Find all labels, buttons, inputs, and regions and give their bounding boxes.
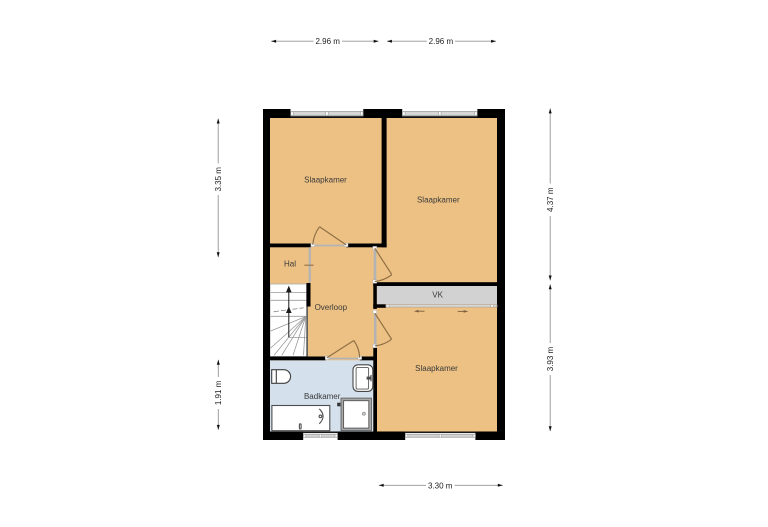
svg-text:Slaapkamer: Slaapkamer xyxy=(417,195,460,204)
svg-text:1.91 m: 1.91 m xyxy=(214,380,223,405)
svg-text:3.30 m: 3.30 m xyxy=(428,481,453,490)
svg-text:Overloop: Overloop xyxy=(315,303,348,312)
svg-text:Slaapkamer: Slaapkamer xyxy=(304,176,347,185)
svg-text:4.37 m: 4.37 m xyxy=(546,187,555,212)
svg-text:2.96 m: 2.96 m xyxy=(429,37,454,46)
svg-text:3.35 m: 3.35 m xyxy=(214,167,223,192)
svg-text:Hal: Hal xyxy=(284,260,296,269)
svg-text:Badkamer: Badkamer xyxy=(304,392,341,401)
svg-text:Slaapkamer: Slaapkamer xyxy=(415,364,458,373)
svg-text:2.96 m: 2.96 m xyxy=(315,37,340,46)
svg-text:3.93 m: 3.93 m xyxy=(546,346,555,371)
svg-text:VK: VK xyxy=(432,291,443,300)
